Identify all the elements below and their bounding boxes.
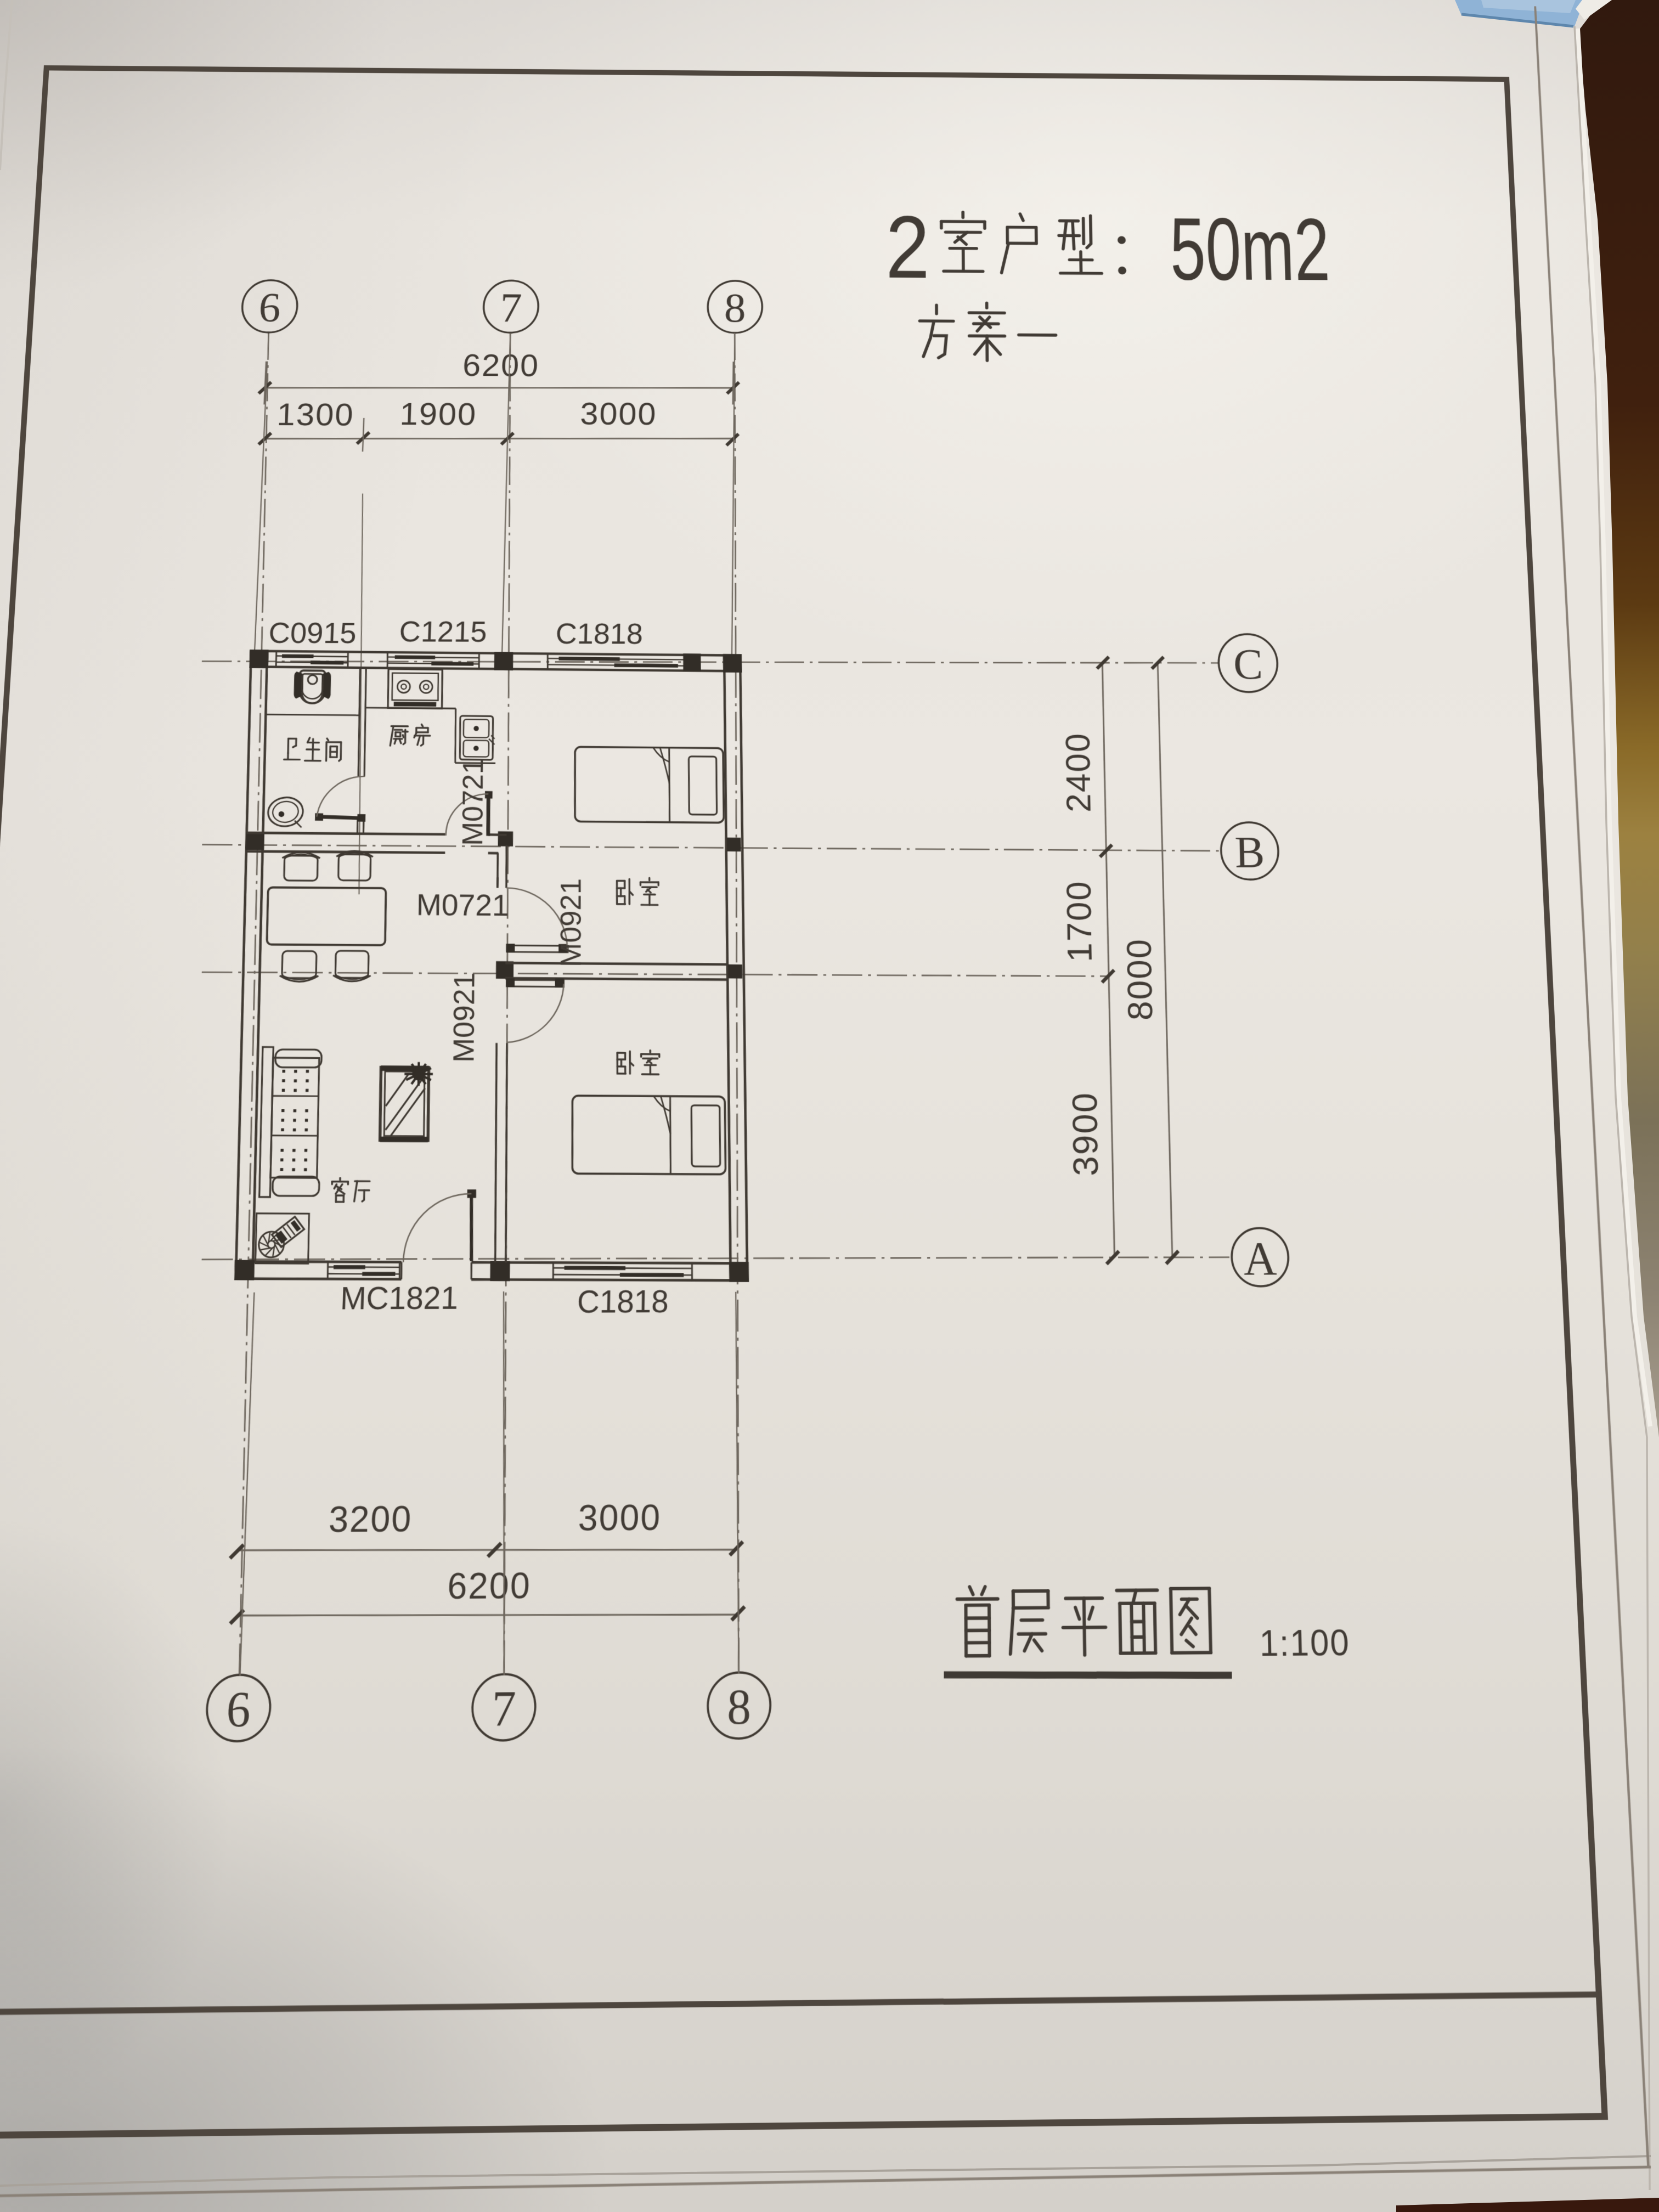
svg-text:7: 7 (499, 285, 522, 331)
svg-text:3000: 3000 (580, 396, 657, 431)
svg-text:2400: 2400 (1059, 732, 1098, 812)
svg-text:1300: 1300 (276, 397, 354, 432)
svg-text:50m2: 50m2 (1169, 200, 1331, 299)
svg-text:1900: 1900 (399, 396, 478, 432)
svg-text:6200: 6200 (462, 348, 540, 383)
svg-text:7: 7 (491, 1681, 516, 1737)
svg-text:6: 6 (258, 285, 282, 331)
svg-text:3000: 3000 (578, 1497, 662, 1538)
svg-text:6200: 6200 (447, 1565, 531, 1606)
svg-text:M0721: M0721 (416, 888, 509, 922)
svg-text:M0921: M0921 (448, 972, 481, 1063)
svg-text:A: A (1243, 1232, 1277, 1285)
svg-text:2: 2 (885, 198, 930, 297)
svg-text:MC1821: MC1821 (340, 1280, 459, 1316)
svg-text:B: B (1234, 827, 1266, 877)
svg-text:C1215: C1215 (399, 616, 487, 648)
svg-text:1:100: 1:100 (1259, 1622, 1351, 1664)
svg-text:C1818: C1818 (577, 1283, 669, 1319)
svg-text:C1818: C1818 (555, 617, 643, 650)
svg-text:M0921: M0921 (555, 878, 587, 967)
svg-text:8: 8 (724, 285, 746, 331)
svg-text:3200: 3200 (328, 1498, 413, 1540)
svg-text:8: 8 (727, 1679, 752, 1735)
svg-text:C0915: C0915 (268, 617, 357, 650)
svg-text:6: 6 (225, 1681, 251, 1738)
svg-text:3900: 3900 (1065, 1092, 1106, 1176)
svg-text:C: C (1233, 640, 1263, 689)
svg-text:M0721: M0721 (456, 758, 489, 846)
svg-text:1700: 1700 (1060, 881, 1099, 962)
svg-text:8000: 8000 (1120, 938, 1160, 1020)
